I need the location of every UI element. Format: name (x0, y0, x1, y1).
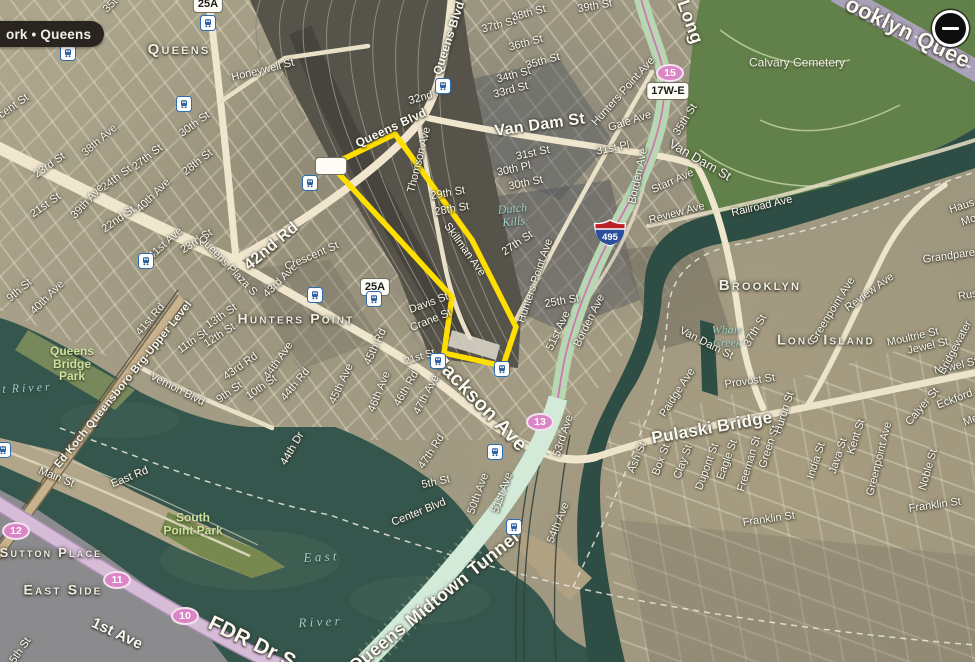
map-label-9th-st: 9th St (5, 277, 34, 304)
map-label-honeywell-st: Honeywell St (230, 58, 295, 85)
map-label-review-ave: Review Ave (843, 271, 896, 314)
transit-station-icon[interactable] (0, 442, 11, 458)
transit-station-icon[interactable] (494, 361, 510, 377)
map-label-38th-ave: 38th Ave (80, 123, 120, 160)
map-label-47th-rd: 47th Rd (417, 433, 448, 472)
map-label-e-a-s-t: E a s t (303, 549, 337, 564)
map-label-41st-rd: 41st Rd (134, 302, 167, 338)
map-label-starr-ave: Starr Ave (650, 168, 696, 197)
transit-station-icon[interactable] (430, 353, 446, 369)
map-label-31st-st: 31st St (515, 145, 551, 163)
map-label-31st-pl: 31st Pl (595, 140, 630, 158)
train-icon (141, 256, 151, 266)
map-label-calvary-cemetery: Calvary Cemetery (749, 57, 845, 70)
map-label-paidge-ave: Paidge Ave (658, 367, 698, 420)
transit-station-icon[interactable] (200, 15, 216, 31)
map-label-haus: Haus (948, 198, 975, 217)
map-label-45th-ave: 45th Ave (328, 362, 356, 406)
map-label-bridgewater: Bridgewater (937, 319, 975, 376)
map-label-borden-ave: Borden Ave (572, 293, 607, 349)
map-label-21st-st: 21st St (29, 191, 64, 220)
train-icon (438, 81, 448, 91)
train-icon (203, 18, 213, 28)
map-label-43rd-rd: 43rd Rd (222, 351, 261, 383)
train-icon (0, 445, 8, 455)
map-label-greenpoint-ave: Greenpoint Ave (808, 276, 858, 346)
map-label-freeman-st: Freeman St (736, 435, 764, 493)
train-icon (497, 364, 507, 374)
train-icon (179, 99, 189, 109)
map-label-newel-st: Newel St (933, 356, 975, 377)
map-label-provost-st: Provost St (724, 373, 776, 391)
train-icon (490, 447, 500, 457)
map-label-crane-st: Crane St (409, 308, 454, 335)
map-label-46th-rd: 46th Rd (392, 369, 421, 408)
map-label-huron-st: Huron St (773, 391, 797, 436)
map-label-hunters-point-ave: Hunters Point Ave (590, 55, 657, 128)
train-icon (310, 290, 320, 300)
map-label-clay-st: Clay St (673, 443, 696, 480)
map-labels-layer: 35tQueensHoneywell St30th St38th Ave27th… (0, 0, 975, 662)
map-label-11th-st: 11th St (176, 328, 211, 357)
map-label-51st-ave: 51st Ave (490, 471, 515, 514)
map-label-rus: Rus (957, 289, 975, 304)
map-label-30th-pl: 30th Pl (496, 161, 532, 179)
map-label-mo: Mo (960, 213, 975, 229)
map-label-vernon-blvd: Vernon Blvd (148, 371, 206, 408)
transit-station-icon[interactable] (487, 444, 503, 460)
map-label-30th-st: 30th St (178, 110, 213, 140)
map-label-39th-ave: 39th Ave (69, 182, 107, 221)
minus-icon (942, 27, 959, 31)
map-label-35t: 35t (102, 0, 121, 15)
map-label-sutton-place: Sutton Place (0, 546, 102, 560)
map-label-crescent-st: Crescent St (283, 240, 340, 273)
map-label-10th-st: 10th St (244, 373, 279, 402)
map-label-box-st: Box St (651, 443, 673, 477)
map-label-37th-st: 37th St (742, 313, 769, 349)
map-label-franklin-st: Franklin St (742, 511, 796, 530)
map-label-51st-ave: 51st Ave (545, 310, 573, 353)
map-canvas[interactable]: 35tQueensHoneywell St30th St38th Ave27th… (0, 0, 975, 662)
map-label-east-rd: East Rd (110, 465, 151, 490)
location-badge[interactable]: ork • Queens (0, 21, 104, 47)
map-label-noble-st: Noble St (918, 448, 941, 492)
transit-station-icon[interactable] (176, 96, 192, 112)
map-label-main-st: Main St (37, 466, 76, 491)
map-label-25th-st: 25th St (544, 293, 580, 310)
transit-station-icon[interactable] (138, 253, 154, 269)
map-label-whale-creek: Whale Creek (712, 323, 743, 348)
map-label-42nd-rd: 42nd Rd (242, 220, 303, 275)
map-label-30th-st: 30th St (508, 175, 544, 194)
transit-station-icon[interactable] (435, 78, 451, 94)
map-label-center-blvd: Center Blvd (390, 497, 448, 529)
map-label-queens-blvd: Queens Blvd (354, 106, 429, 150)
map-label-pulaski-bridge: Pulaski Bridge (650, 409, 774, 448)
map-label-long-island: Long Island (777, 333, 875, 348)
train-icon (509, 522, 519, 532)
map-label-ash-st: Ash St (626, 441, 649, 475)
train-icon (305, 178, 315, 188)
map-label-van-dam-st: Van Dam St (677, 326, 734, 363)
map-label-greenpoint-ave: Greenpoint Ave (865, 421, 895, 497)
map-label-t-r-i-v-e-r: t R i v e r (2, 380, 50, 395)
map-label-44th-rd: 44th Rd (279, 367, 313, 404)
map-label-borden-ave: Borden Ave (627, 147, 650, 205)
map-label-jewel-st: Jewel St (906, 337, 949, 358)
map-label-java-st: Java St (828, 437, 850, 475)
map-label-5th-st: 5th St (8, 636, 34, 662)
map-label-thomson-ave: Thomson Ave (406, 126, 433, 194)
map-label-13th-st: 13th St (204, 302, 239, 331)
map-label-39th-st: 39th St (577, 0, 613, 16)
map-label-skillman-ave: Skillman Ave (441, 221, 487, 279)
map-label-davis-st: Davis St (408, 292, 450, 317)
map-label-28th-st: 28th St (181, 148, 216, 179)
map-label-28th-st: 28th St (434, 201, 470, 218)
map-label-23rd-st: 23rd St (32, 151, 68, 181)
map-label-grandpare: Grandpare (922, 248, 975, 267)
transit-station-icon[interactable] (60, 45, 76, 61)
map-label-van-dam-st: Van Dam St (494, 111, 586, 140)
map-label-22nd-st: 22nd St (100, 204, 138, 235)
map-label-long: Long (673, 0, 706, 46)
map-label-44th-dr: 44th Dr (279, 430, 307, 467)
zoom-out-button[interactable] (932, 10, 969, 47)
map-label-franklin-st: Franklin St (908, 497, 962, 516)
map-label-kent-st: Kent St (846, 418, 868, 456)
map-label-9th-st: 9th St (215, 380, 245, 406)
map-label-brooklyn: Brooklyn (719, 278, 801, 294)
map-label-40th-ave: 40th Ave (135, 177, 173, 215)
map-label-45th-rd: 45th Rd (363, 327, 390, 367)
train-icon (433, 356, 443, 366)
map-label-r-i-v-e-r: R i v e r (298, 614, 340, 630)
map-label-1st-ave: 1st Ave (89, 615, 145, 652)
map-label-50th-ave: 50th Ave (466, 472, 491, 516)
map-label-34th-st: 34th St (496, 66, 533, 86)
map-label-35th-st: 35th St (672, 102, 700, 138)
map-label-36th-st: 36th St (508, 34, 545, 54)
map-label-37th-st: 37th St (481, 16, 518, 36)
map-label-hunters-point-ave: Hunters Point Ave (516, 238, 556, 325)
map-label-queens-bridge-park: Queens Bridge Park (50, 345, 94, 383)
map-label-dutch-kills: Dutch Kills (497, 201, 528, 229)
map-label-queens-plaza-s: Queens Plaza S (195, 233, 259, 298)
map-label-38th-st: 38th St (511, 4, 548, 24)
map-label-queens-blvd: Queens Blvd (431, 0, 467, 76)
map-label-gale-ave: Gale Ave (607, 110, 653, 135)
map-label-5th-st: 5th St (421, 474, 452, 491)
map-label-india-st: India St (806, 441, 829, 480)
map-label-railroad-ave: Railroad Ave (730, 194, 793, 219)
map-label-queens: Queens (148, 42, 211, 58)
map-label-23rd-st: 23rd St (179, 227, 215, 256)
map-label-24th-st: 24th St (100, 164, 135, 194)
map-label-29th-st: 29th St (430, 185, 466, 202)
map-label-47th-ave: 47th Ave (412, 373, 442, 416)
map-label-fdr-dr-s: FDR Dr S (205, 612, 300, 662)
map-label-south-point-park: South Point Park (163, 511, 222, 536)
map-label-dupont-st: Dupont St (694, 442, 722, 492)
map-label-cent-st: cent St (0, 92, 31, 121)
map-label-35th-st: 35th St (525, 52, 562, 72)
map-label-eckford: Eckford (936, 388, 975, 412)
transit-station-icon[interactable] (302, 175, 318, 191)
map-label-van-dam-st: Van Dam St (667, 137, 734, 183)
map-label-54th-ave: 54th Ave (546, 501, 573, 545)
map-label-27th-st: 27th St (131, 143, 166, 174)
map-label-green-st: Green St (758, 424, 783, 469)
map-label-40th-ave: 40th Ave (29, 279, 67, 317)
map-label-44th-ave: 44th Ave (262, 340, 296, 382)
map-label-moultrie-st: Moultrie St (886, 326, 940, 349)
map-label-review-ave: Review Ave (648, 201, 706, 227)
transit-station-icon[interactable] (506, 519, 522, 535)
map-label-calyer-st: Calyer St (904, 386, 942, 428)
transit-station-icon[interactable] (307, 287, 323, 303)
train-icon (369, 294, 379, 304)
map-label-me: Me (962, 413, 975, 429)
map-label-east-side: East Side (23, 583, 102, 598)
map-label-hunters-point: Hunters Point (238, 312, 355, 327)
map-label-eagle-st: Eagle St (715, 438, 740, 481)
map-label-43rd-ave: 43rd Ave (262, 262, 301, 301)
map-label-ed-koch-queensboro-brg-upper-level: Ed Koch Queensboro Brg-Upper Level (53, 299, 195, 470)
map-label-queens-midtown-tunnel: Queens Midtown Tunnel (345, 528, 522, 662)
map-label-27th-st: 27th St (500, 229, 535, 258)
map-label-33rd-st: 33rd St (492, 81, 529, 101)
transit-station-icon[interactable] (366, 291, 382, 307)
map-label-53rd-ave: 53rd Ave (552, 414, 576, 459)
map-label-12th-st: 12th St (202, 322, 238, 351)
train-icon (63, 48, 73, 58)
map-label-46th-ave: 46th Ave (367, 370, 394, 414)
